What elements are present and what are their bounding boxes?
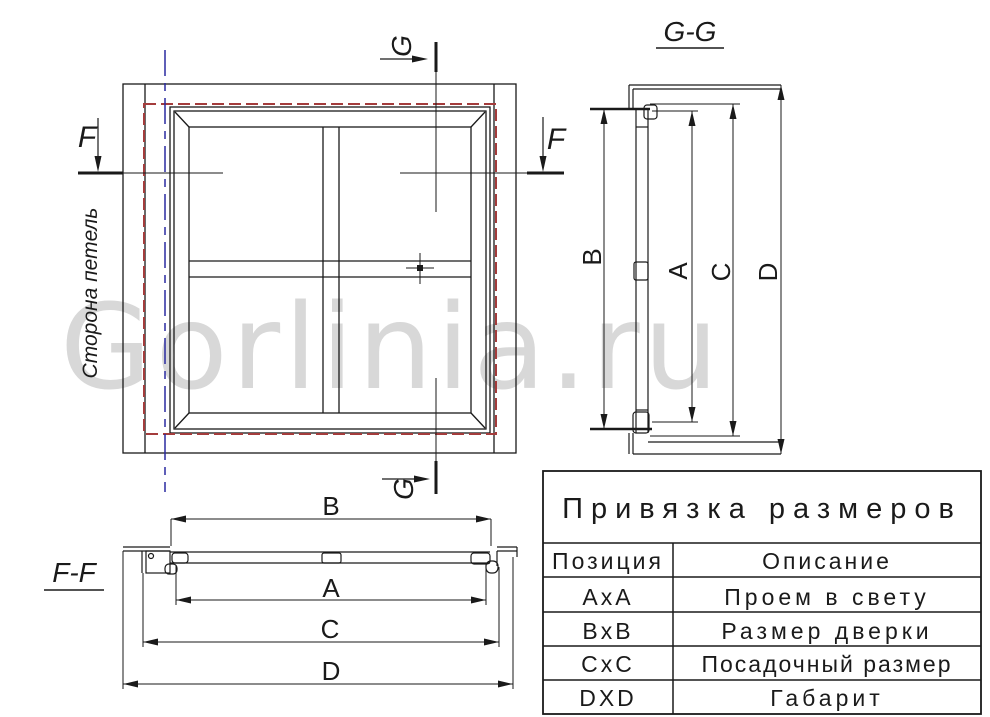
section-ff-title: F-F — [52, 557, 97, 588]
hinge-knuckle-left — [172, 553, 188, 563]
gg-dim-label-d: D — [753, 263, 783, 282]
table-cell-position: BxB — [582, 618, 633, 644]
section-label-f-right: F — [547, 123, 567, 156]
table-row: BxB Размер дверки — [582, 618, 932, 644]
hinge-side-label: Сторона петель — [79, 208, 102, 379]
table-row: DXD Габарит — [579, 685, 884, 711]
table-cell-position: DXD — [579, 685, 637, 711]
table-cell-description: Проем в свету — [724, 584, 930, 610]
section-cut-f-left — [78, 118, 223, 173]
table-header-position: Позиция — [552, 548, 664, 574]
ff-dim-label-d: D — [322, 656, 341, 686]
gg-dim-label-c: C — [706, 263, 736, 282]
section-label-f-left: F — [78, 121, 98, 154]
hinge-top — [644, 105, 657, 119]
section-label-g-top: G — [386, 35, 417, 57]
table-cell-description: Посадочный размер — [701, 651, 952, 677]
table-cell-description: Габарит — [770, 685, 884, 711]
hinge-pin — [149, 554, 154, 559]
table-row: AxA Проем в свету — [582, 584, 929, 610]
table-header-description: Описание — [762, 548, 892, 574]
ff-dim-label-a: A — [322, 573, 340, 603]
ff-dim-label-c: C — [321, 614, 340, 644]
table-cell-position: AxA — [582, 584, 633, 610]
section-cut-f-right — [400, 117, 564, 173]
section-ff-view — [44, 516, 517, 690]
ff-dim-label-b: B — [322, 491, 339, 521]
hinge-knuckle-right-pivot — [486, 561, 498, 573]
hinge-knuckle-middle — [322, 553, 341, 563]
table-cell-position: CxC — [581, 651, 635, 677]
table-row: CxC Посадочный размер — [581, 651, 952, 677]
gg-dim-label-b: B — [577, 248, 607, 265]
section-gg-title: G-G — [664, 16, 717, 47]
table-title: Привязка размеров — [562, 493, 962, 525]
watermark-text: Gorlinia.ru — [60, 278, 722, 416]
gg-dim-label-a: A — [663, 262, 693, 280]
technical-drawing: Gorlinia.ru F F — [0, 0, 990, 717]
center-mark — [417, 265, 423, 271]
arrow-down-icon — [540, 156, 547, 172]
arrow-down-icon — [95, 156, 102, 172]
dim-arrows — [123, 516, 513, 688]
table-cell-description: Размер дверки — [721, 618, 932, 644]
drawing-canvas: Gorlinia.ru F F — [0, 0, 990, 717]
section-label-g-bottom: G — [388, 478, 419, 500]
